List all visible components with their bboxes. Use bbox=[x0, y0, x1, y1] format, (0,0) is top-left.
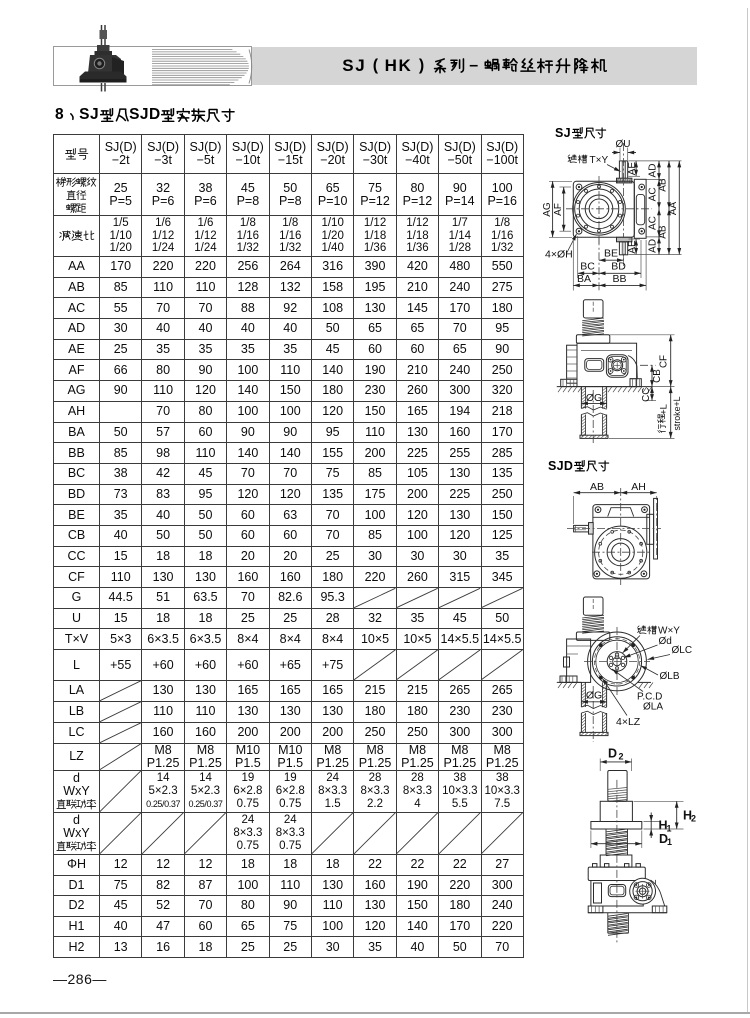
svg-text:BB: BB bbox=[612, 273, 626, 285]
svg-text:CF: CF bbox=[658, 355, 669, 368]
svg-text:BD: BD bbox=[611, 261, 626, 273]
svg-text:BE: BE bbox=[604, 248, 618, 260]
svg-text:AB: AB bbox=[658, 178, 669, 192]
svg-text:4×LZ: 4×LZ bbox=[616, 716, 641, 728]
svg-text:ØLA: ØLA bbox=[643, 702, 663, 713]
svg-text:AA: AA bbox=[668, 202, 679, 216]
svg-text:AD: AD bbox=[648, 239, 659, 253]
svg-text:Ød: Ød bbox=[659, 636, 672, 647]
svg-text:2: 2 bbox=[691, 814, 696, 824]
svg-text:CC: CC bbox=[641, 388, 652, 402]
svg-text:ØLC: ØLC bbox=[672, 645, 693, 656]
svg-text:AE: AE bbox=[627, 162, 638, 176]
svg-text:1: 1 bbox=[667, 837, 672, 847]
svg-text:AE: AE bbox=[627, 240, 638, 254]
svg-text:D: D bbox=[608, 747, 617, 761]
svg-text:AF: AF bbox=[553, 203, 564, 216]
svg-text:ØG: ØG bbox=[586, 392, 602, 404]
svg-text:AB: AB bbox=[658, 225, 669, 239]
svg-text:AH: AH bbox=[631, 481, 646, 493]
svg-text:BC: BC bbox=[580, 261, 595, 273]
svg-text:W×Y: W×Y bbox=[658, 626, 680, 637]
svg-text:T×Y: T×Y bbox=[590, 155, 609, 166]
svg-text:ØG: ØG bbox=[586, 689, 602, 701]
svg-text:+L: +L bbox=[658, 404, 669, 415]
svg-text:AB: AB bbox=[590, 481, 604, 493]
svg-text:ØU: ØU bbox=[616, 139, 631, 150]
svg-text:2: 2 bbox=[618, 752, 623, 762]
svg-text:BA: BA bbox=[577, 273, 591, 285]
svg-text:AG: AG bbox=[542, 202, 553, 217]
svg-text:CB: CB bbox=[652, 369, 663, 383]
svg-text:ØLB: ØLB bbox=[660, 671, 680, 682]
svg-text:AD: AD bbox=[648, 164, 659, 178]
svg-text:stroke+L: stroke+L bbox=[672, 396, 682, 430]
